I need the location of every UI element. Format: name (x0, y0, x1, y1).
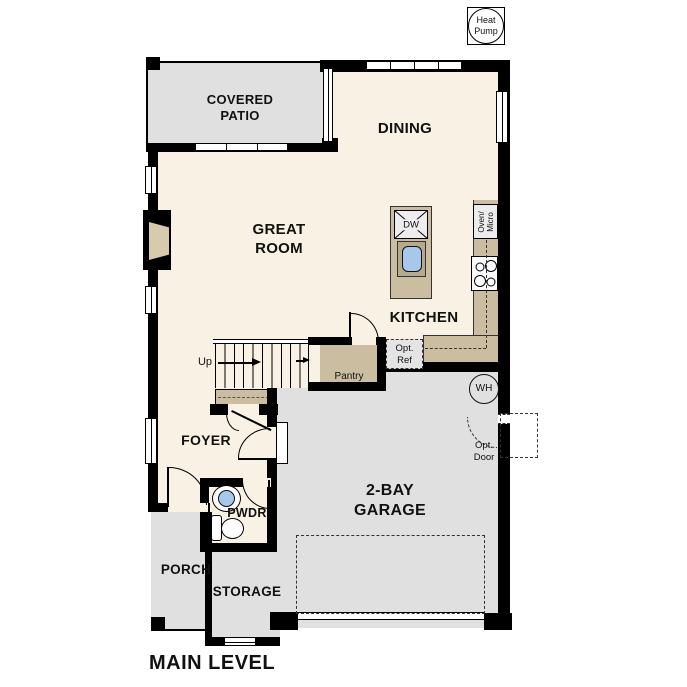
garage-door-clearance (296, 535, 485, 614)
dining-right-window (496, 91, 508, 143)
main-level-title: MAIN LEVEL (149, 651, 369, 676)
under-stair-closet (215, 389, 272, 405)
staircase (215, 344, 309, 388)
pantry-label: Pantry (319, 371, 379, 384)
garage-label: 2-BAY GARAGE (330, 481, 450, 521)
great-room-label: GREAT ROOM (229, 221, 329, 259)
counter-dash-horizontal (425, 348, 486, 349)
powder-sink-bowl (218, 490, 235, 507)
cooktop (471, 256, 498, 291)
opt-door-label: Opt. Door (462, 440, 506, 464)
porch-label: PORCH (146, 562, 226, 579)
counter-dash-vertical (486, 240, 487, 348)
kitchen-label: KITCHEN (374, 309, 474, 328)
dishwasher: DW (394, 210, 428, 239)
fireplace-insert (149, 222, 169, 260)
floor-plan: DW Oven/ Micro Opt. Ref WH Hea (0, 0, 687, 687)
great-room-window-lower (145, 286, 157, 314)
dining-label: DINING (355, 120, 455, 139)
heat-pump-label: Heat Pump (468, 15, 504, 37)
patio-slider-door (323, 68, 333, 142)
oven-micro: Oven/ Micro (473, 204, 498, 239)
powder-label: PWDR (217, 506, 277, 522)
storage-window (224, 637, 256, 646)
garage-bottom-wall-right (484, 613, 512, 630)
dishwasher-label: DW (401, 219, 421, 230)
storage-label: STORAGE (197, 584, 297, 601)
dining-window-band (366, 61, 462, 70)
stair-arrow-head (252, 358, 261, 366)
opt-ref-box: Opt. Ref (386, 339, 423, 369)
oven-micro-label: Oven/ Micro (476, 211, 494, 232)
patio-roof-line-top (148, 61, 328, 63)
patio-roof-line-left (146, 61, 148, 144)
stair-arrow-head-2 (303, 357, 310, 363)
foyer-window (145, 418, 157, 464)
garage-right-wall (498, 372, 510, 630)
up-label: Up (194, 356, 216, 370)
stair-arrow-line (218, 362, 254, 364)
patio-corner-post (146, 57, 160, 70)
garage-bottom-wall-left (270, 612, 298, 630)
covered-patio-label: COVERED PATIO (180, 92, 300, 125)
powder-bottom-wall (200, 543, 277, 552)
great-room-window-upper (145, 166, 157, 194)
porch-corner-post (151, 617, 165, 631)
water-heater: WH (469, 374, 499, 404)
garage-entry-door-leaf (238, 458, 270, 460)
foyer-label: FOYER (166, 432, 246, 450)
opt-ref-label: Opt. Ref (387, 343, 422, 367)
water-heater-label: WH (470, 383, 498, 396)
garage-entry-step (276, 422, 288, 464)
closet-rod-dashed-line (218, 397, 269, 398)
heat-pump: Heat Pump (467, 7, 505, 45)
kitchen-sink (402, 246, 422, 272)
patio-window-band (195, 143, 288, 151)
